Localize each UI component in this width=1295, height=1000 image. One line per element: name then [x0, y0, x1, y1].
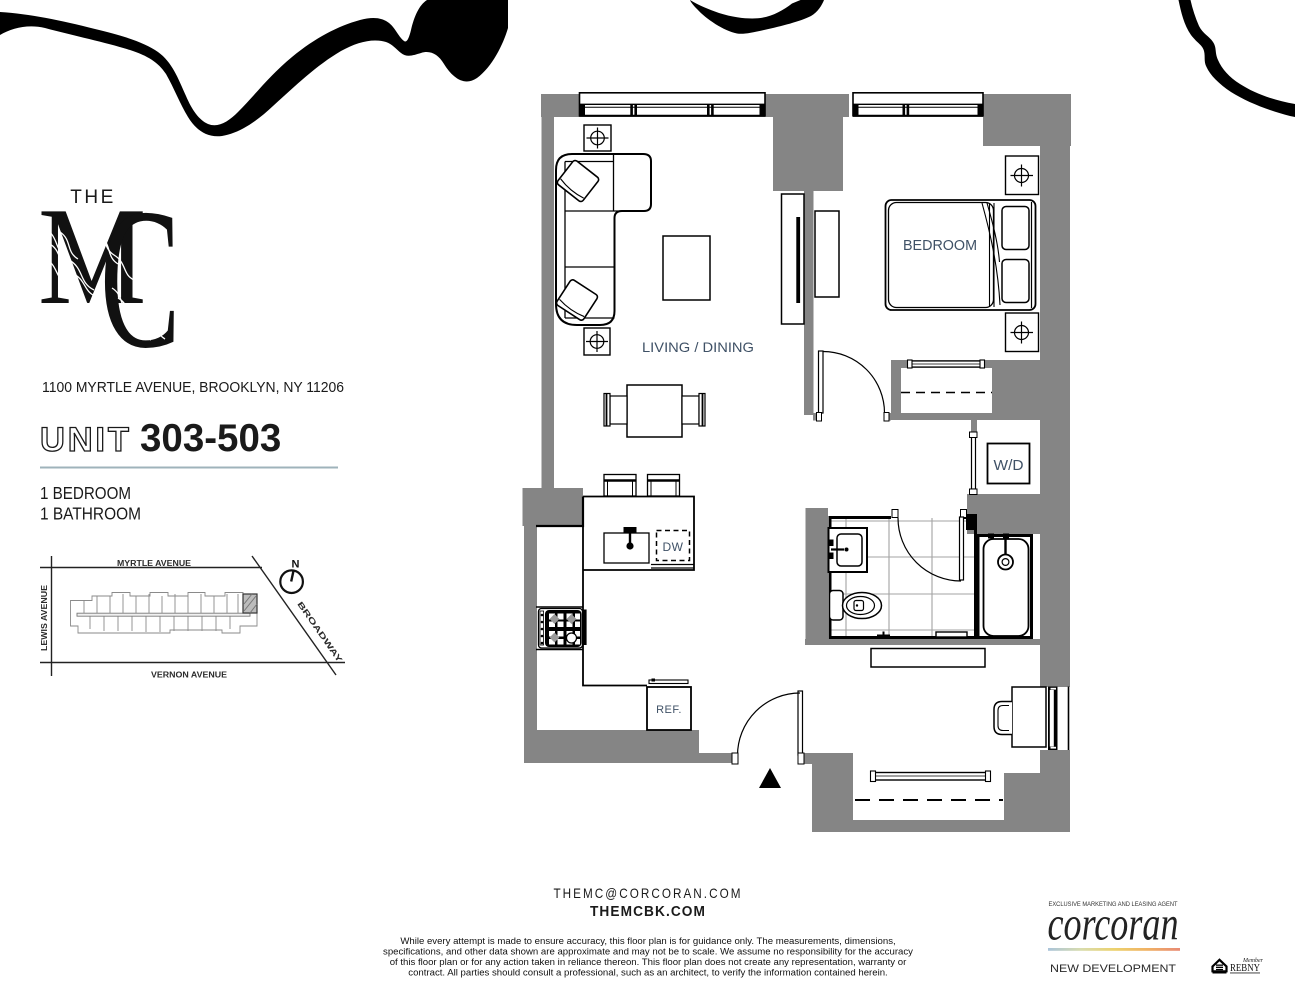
svg-text:of this floor plan or for any: of this floor plan or for any action tak…	[390, 957, 907, 968]
svg-text:THEMC@CORCORAN.COM: THEMC@CORCORAN.COM	[554, 886, 743, 901]
svg-text:MYRTLE AVENUE: MYRTLE AVENUE	[117, 559, 192, 568]
svg-text:303-503: 303-503	[140, 417, 281, 460]
svg-text:contract. All parties should c: contract. All parties should consult a p…	[408, 968, 887, 979]
svg-text:1 BEDROOM: 1 BEDROOM	[40, 483, 131, 503]
svg-text:REF.: REF.	[656, 704, 682, 716]
svg-text:While every attempt is made to: While every attempt is made to ensure ac…	[400, 936, 895, 947]
svg-text:1100 MYRTLE AVENUE, BROOKLYN,: 1100 MYRTLE AVENUE, BROOKLYN, NY 11206	[42, 379, 344, 396]
svg-text:specifications, and other data: specifications, and other data shown are…	[383, 947, 913, 958]
svg-text:BEDROOM: BEDROOM	[903, 238, 977, 254]
svg-text:VERNON AVENUE: VERNON AVENUE	[151, 671, 228, 680]
svg-text:corcoran: corcoran	[1048, 898, 1179, 951]
svg-text:REBNY: REBNY	[1230, 962, 1260, 974]
svg-text:LEWIS AVENUE: LEWIS AVENUE	[40, 584, 49, 651]
svg-text:LIVING / DINING: LIVING / DINING	[642, 339, 754, 355]
svg-text:N: N	[292, 559, 300, 571]
svg-text:BROADWAY: BROADWAY	[295, 600, 344, 665]
svg-text:THEMCBK.COM: THEMCBK.COM	[590, 903, 706, 920]
svg-text:1 BATHROOM: 1 BATHROOM	[40, 504, 141, 524]
svg-text:UNIT: UNIT	[40, 421, 132, 459]
svg-text:DW: DW	[663, 540, 684, 554]
svg-text:W/D: W/D	[994, 458, 1024, 474]
svg-text:C: C	[100, 167, 180, 390]
svg-text:NEW DEVELOPMENT: NEW DEVELOPMENT	[1050, 963, 1176, 975]
